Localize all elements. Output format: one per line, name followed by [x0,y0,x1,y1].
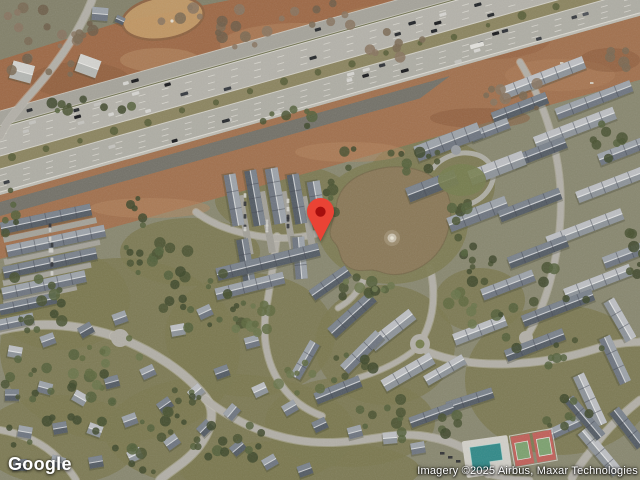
google-logo[interactable]: Google [8,454,72,475]
map-canvas[interactable]: Google Imagery ©2025 Airbus, Maxar Techn… [0,0,640,480]
imagery-attribution: Imagery ©2025 Airbus, Maxar Technologies [417,465,638,477]
pin-dot [315,207,325,217]
pin-body [307,198,334,241]
location-marker[interactable] [307,198,334,241]
